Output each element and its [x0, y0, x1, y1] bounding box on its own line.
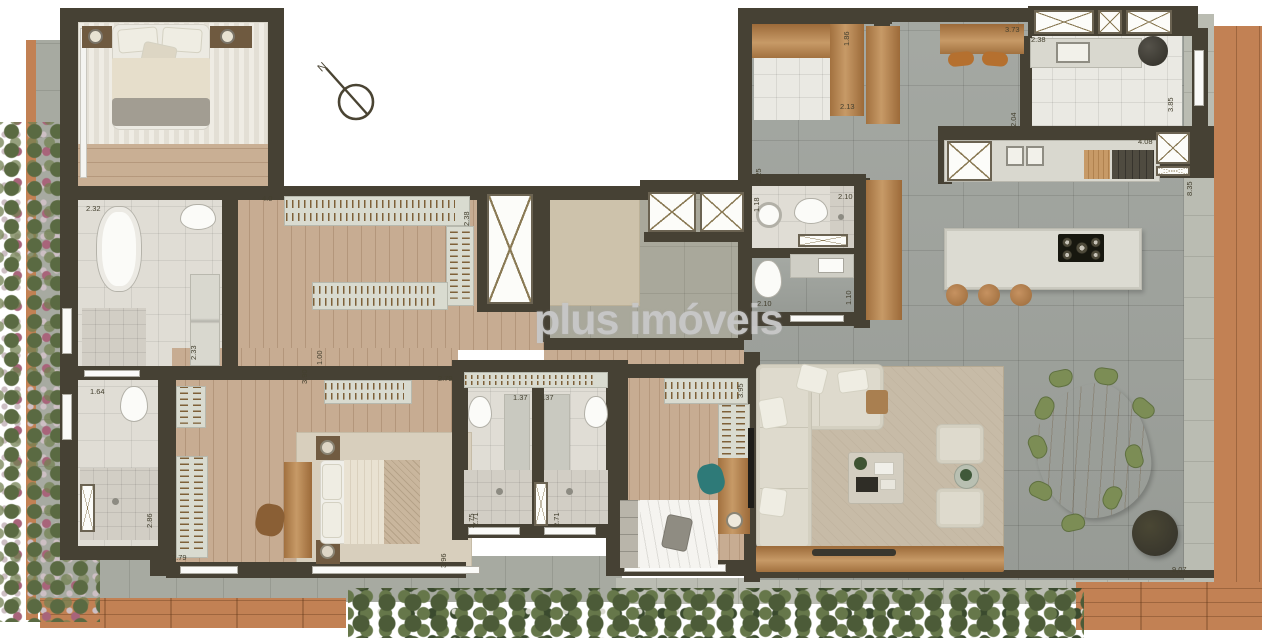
soundbar	[812, 549, 896, 556]
bath2-toilet	[120, 386, 148, 422]
wall-bath1-right	[222, 192, 238, 378]
service-tile	[754, 56, 830, 120]
island-stool-2	[978, 284, 1000, 306]
cooktop	[1058, 234, 1104, 262]
sofa-pillow-4	[758, 486, 788, 517]
suite1-duvet	[112, 58, 210, 100]
private-elevator-shaft	[487, 194, 533, 304]
bath2-showerhead	[112, 498, 119, 505]
dim-label: 9,07	[1172, 566, 1187, 574]
dim-label: 1.00	[316, 350, 324, 365]
dim-label: 1.86	[843, 31, 851, 46]
island-stool-3	[1010, 284, 1032, 306]
wall-baths34-top	[452, 360, 628, 372]
dim-label: 2.71	[472, 512, 480, 527]
dim-label: 1.64	[90, 388, 105, 396]
dim-label: 1.37	[539, 394, 554, 402]
coffee-table-book	[874, 462, 894, 475]
window-bath2-top	[84, 370, 140, 377]
tv-panel	[748, 428, 754, 508]
bottom-right-deck	[1076, 582, 1262, 630]
kitchen-cabinet-left	[947, 141, 992, 181]
master-rack-west2	[176, 456, 208, 558]
wall-bedroom3-left	[606, 364, 620, 576]
suite1-lamp-right	[220, 29, 235, 44]
bedroom3-headboard-cushions	[620, 500, 638, 568]
dim-label: 1.18	[753, 197, 761, 212]
closet-rack-right	[446, 226, 474, 306]
bathtub	[96, 206, 142, 292]
master-rack-north	[324, 380, 412, 404]
master-desk	[284, 462, 312, 558]
wall-bedroom3-top	[606, 364, 756, 378]
dim-label: 2.13	[840, 103, 855, 111]
suite1-curtain	[80, 28, 87, 178]
wall-master-top	[168, 366, 466, 380]
hall-cabinet	[866, 180, 902, 320]
floor-plan: 2.32 2.33 1.64 2.86 4.0 2.38 1.00 3.90 2…	[0, 0, 1280, 640]
wall-counter-back	[938, 126, 1164, 140]
baths34-shaft	[534, 482, 548, 526]
elevator-2	[700, 192, 744, 232]
coffee-table-art	[856, 477, 878, 492]
window-bath2-left	[62, 394, 72, 440]
dim-label: 2.10	[838, 193, 853, 201]
wall-suite1-top	[60, 8, 284, 22]
kitchen-upper-cabinet-2	[1098, 10, 1122, 34]
dim-label: 4.0	[262, 195, 272, 203]
bedroom3-rack-side	[718, 404, 750, 460]
sofa-pillow-3	[758, 396, 789, 430]
dim-label: 2.86	[146, 513, 154, 528]
kitchen-upper-cabinet-3	[1126, 10, 1172, 34]
window-bath3	[468, 527, 520, 535]
suite1-lamp-left	[88, 29, 103, 44]
bath3-toilet	[468, 396, 492, 428]
fridge-cabinet	[1156, 166, 1190, 176]
bath3-showerhead	[496, 488, 503, 495]
bedroom3-lamp	[726, 512, 743, 529]
dim-label: 3.85	[1167, 97, 1175, 112]
double-sink-1	[1006, 146, 1024, 166]
bottom-garden	[348, 588, 1084, 638]
baths34-rack	[464, 372, 608, 388]
dim-label: 4.08	[1138, 138, 1153, 146]
master-woven-throw	[384, 460, 420, 544]
dim-label: 2.04	[1010, 112, 1018, 127]
armchair-2	[936, 488, 984, 528]
kitchen-sink	[1056, 42, 1090, 63]
master-lamp-top	[320, 440, 335, 455]
double-sink-2	[1026, 146, 1044, 166]
dim-label: 3.96	[440, 553, 448, 568]
window-bath5	[790, 315, 844, 322]
dim-label: 1.10	[845, 290, 853, 305]
window-bath4	[544, 527, 596, 535]
master-duvet	[344, 460, 384, 544]
wall-suite1-right	[268, 8, 284, 200]
dim-label: 2.38	[1031, 36, 1046, 44]
elevator-1	[648, 192, 696, 232]
dim-label: 8.35	[1186, 181, 1194, 196]
dim-label: 1.25	[755, 168, 763, 183]
master-pillow-1	[322, 464, 342, 500]
wall-kitchen-top	[886, 8, 1030, 22]
bath1-shower	[82, 308, 146, 366]
lav-toilet	[794, 198, 828, 224]
master-pillow-2	[322, 502, 342, 538]
master-lamp-bottom	[320, 544, 335, 559]
dim-label: 1.37	[513, 394, 528, 402]
bath5-toilet	[754, 260, 782, 298]
north-label: N	[316, 60, 330, 74]
wall-service-top	[738, 8, 892, 24]
dim-label: 2.71	[553, 512, 561, 527]
wall-elevators-south	[644, 232, 748, 242]
bath3-vanity	[504, 394, 530, 480]
island-stool-1	[946, 284, 968, 306]
bath1-toilet	[180, 204, 216, 230]
bath4-showerhead	[566, 488, 573, 495]
dim-label: 3.95	[737, 383, 745, 398]
range	[1112, 150, 1154, 179]
window-master	[312, 566, 480, 574]
cutting-board	[1084, 150, 1110, 179]
closet-rack-top	[284, 196, 470, 226]
kitchen-upper-cabinet-1	[1034, 10, 1094, 34]
dim-label: 2.79	[438, 375, 453, 383]
closet-rack-mid	[312, 282, 448, 310]
north-arrow-icon: N	[316, 56, 392, 132]
sofa-pillow-2	[837, 368, 870, 394]
bath4-toilet	[584, 396, 608, 428]
wall-bath2-right	[158, 366, 176, 562]
terrace-pouf	[1132, 510, 1178, 556]
coffee-table-plant	[854, 457, 867, 470]
wall-left-outer	[60, 8, 78, 560]
dim-label: 2.32	[86, 205, 101, 213]
suite1-wood-floor	[78, 144, 268, 190]
coffee-table-tray	[880, 479, 896, 490]
window-kitchen	[1194, 50, 1204, 106]
bar-stool-2	[981, 51, 1008, 67]
armchair-1	[936, 424, 984, 464]
elevator-hall-rug	[548, 194, 640, 306]
side-table-plant	[960, 469, 972, 481]
right-deck	[1214, 26, 1262, 584]
dim-label: 3.73	[1005, 26, 1020, 34]
bath5-sink	[818, 258, 844, 273]
lav-bench	[798, 234, 848, 247]
water-heater	[1138, 36, 1168, 66]
window-bath1	[62, 308, 72, 354]
fridge	[1156, 132, 1190, 164]
dim-label: 3.90	[301, 369, 309, 384]
dim-label: 2.38	[463, 211, 471, 226]
wall-service-left	[738, 8, 752, 186]
master-rack-west1	[176, 386, 206, 428]
sofa-long	[756, 364, 812, 550]
kitchen-island	[944, 228, 1142, 290]
window-master-west	[180, 566, 238, 574]
wall-suite1-bath1	[60, 186, 284, 200]
service-tall-cabinet	[866, 26, 900, 124]
dim-label: 2.33	[190, 345, 198, 360]
bath4-vanity	[544, 394, 570, 480]
dim-label: 2.79	[172, 554, 187, 562]
suite1-throw	[112, 98, 210, 126]
bath2-bench	[80, 484, 95, 532]
lav-showerhead	[838, 214, 844, 220]
sofa-side-table	[866, 390, 888, 414]
wall-elevator-left	[477, 190, 487, 310]
watermark: plus imóveis	[534, 296, 782, 345]
